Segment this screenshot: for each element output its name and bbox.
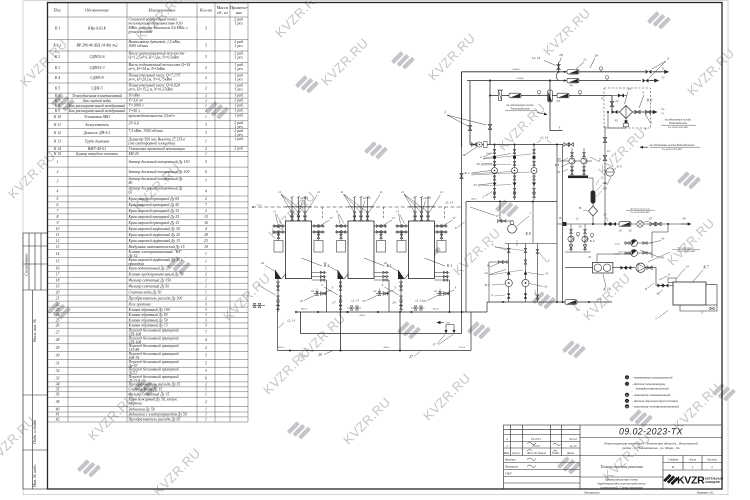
svg-text:159х4,5: 159х4,5 — [512, 68, 520, 71]
svg-text:ЗАВОД.РФ: ЗАВОД.РФ — [705, 480, 720, 484]
svg-text:42: 42 — [56, 418, 60, 422]
svg-text:2: 2 — [205, 209, 207, 213]
svg-text:в УУ: в УУ — [597, 298, 602, 301]
svg-text:21: 21 — [56, 296, 60, 300]
svg-text:17: 17 — [495, 214, 499, 218]
svg-text:108х4: 108х4 — [359, 314, 365, 317]
svg-text:1: 1 — [205, 278, 207, 282]
svg-text:3: 3 — [205, 313, 207, 317]
svg-text:СДМ-5: СДМ-5 — [91, 86, 102, 90]
svg-text:Преобразователь расхода Ду 1: Преобразователь расхода Ду 15 — [128, 383, 181, 387]
svg-text:11: 11 — [396, 210, 399, 214]
svg-text:6: 6 — [205, 170, 207, 174]
svg-text:28: 28 — [56, 338, 60, 342]
svg-text:Теплообменник пластинчатый: Теплообменник пластинчатый — [72, 93, 122, 98]
svg-text:Взам. инв. №: Взам. инв. № — [32, 319, 37, 342]
svg-text:Кран подпиточный Ду 25: Кран подпиточный Ду 25 — [128, 266, 170, 271]
svg-text:Затвор дисковый поворотный Ду: Затвор дисковый поворотный Ду — [129, 176, 184, 181]
svg-text:ручной топкой: ручной топкой — [128, 29, 153, 34]
svg-text:40: 40 — [56, 408, 60, 412]
svg-text:1 раб.: 1 раб. — [234, 99, 244, 103]
svg-text:25х3,5: 25х3,5 — [535, 290, 537, 295]
svg-text:СДМ5-8: СДМ5-8 — [90, 76, 103, 80]
svg-text:30: 30 — [56, 354, 60, 358]
svg-text:Затвор дисковый поворотный Ду: Затвор дисковый поворотный Ду 100 — [129, 169, 190, 174]
svg-text:20: 20 — [56, 290, 60, 294]
svg-text:22: 22 — [261, 261, 265, 265]
svg-text:32: 32 — [56, 369, 60, 373]
svg-text:3: 3 — [205, 319, 207, 323]
svg-text:Клапан обратный Ду 50: Клапан обратный Ду 50 — [128, 318, 168, 323]
svg-text:22: 22 — [373, 289, 377, 293]
svg-text:19: 19 — [56, 284, 60, 288]
svg-text:27: 27 — [332, 301, 336, 305]
svg-text:159х4,5: 159х4,5 — [516, 77, 524, 80]
svg-text:33: 33 — [56, 376, 60, 380]
svg-text:Водоснабжения: Водоснабжения — [669, 122, 688, 125]
svg-text:Лист № докум.: Лист № докум. — [526, 451, 547, 455]
svg-text:1: 1 — [205, 290, 207, 294]
svg-text:СДМ15-3: СДМ15-3 — [89, 66, 104, 70]
svg-text:К 3: К 3 — [54, 66, 60, 70]
svg-text:К 5: К 5 — [54, 86, 60, 90]
svg-text:1: 1 — [205, 252, 207, 256]
svg-text:2: 2 — [711, 465, 713, 469]
svg-text:П: П — [671, 465, 675, 469]
svg-text:К 8: К 8 — [524, 232, 530, 236]
svg-text:2: 2 — [205, 383, 207, 387]
svg-text:13: 13 — [204, 215, 208, 219]
svg-text:2: 2 — [205, 400, 207, 404]
svg-text:Лист: Лист — [688, 458, 697, 462]
svg-text:14: 14 — [56, 252, 60, 256]
svg-text:02.24: 02.24 — [569, 437, 577, 441]
svg-text:10: 10 — [56, 227, 60, 231]
svg-text:11: 11 — [440, 190, 443, 194]
svg-text:Кран шаровой муфтовый Ду 20: Кран шаровой муфтовый Ду 20 — [128, 232, 180, 237]
svg-text:Фильтр сетчатый Ду 150: Фильтр сетчатый Ду 150 — [129, 277, 172, 282]
svg-text:36: 36 — [579, 206, 583, 210]
svg-text:3: 3 — [205, 44, 207, 48]
svg-text:29: 29 — [318, 353, 322, 357]
svg-text:2: 2 — [205, 346, 207, 350]
svg-text:16: 16 — [56, 267, 60, 271]
svg-text:1: 1 — [205, 393, 207, 397]
svg-text:ГИП: ГИП — [504, 471, 512, 475]
svg-text:К 9: К 9 — [616, 165, 622, 169]
svg-text:89х3,5: 89х3,5 — [301, 309, 308, 311]
svg-text:К 7: К 7 — [54, 99, 61, 103]
svg-text:- манометр показывающий: - манометр показывающий — [632, 392, 671, 397]
svg-text:Согласовано: Согласовано — [24, 254, 29, 276]
svg-text:Кран шаровой приварной Ду 65: Кран шаровой приварной Ду 65 — [128, 196, 180, 201]
svg-text:1 раб.: 1 раб. — [234, 114, 244, 118]
svg-text:34: 34 — [569, 84, 573, 88]
svg-text:Затвор дисковый поворотный Ду: Затвор дисковый поворотный Ду 150 — [129, 159, 190, 164]
svg-text:Реле протока: Реле протока — [128, 302, 151, 306]
svg-text:28: 28 — [204, 233, 208, 237]
svg-text:41: 41 — [661, 237, 665, 241]
svg-text:1 раб.: 1 раб. — [234, 94, 244, 98]
svg-text:Фильтр сетчатый Ду 50: Фильтр сетчатый Ду 50 — [129, 283, 170, 288]
svg-text:(термосопротивления): (термосопротивления) — [636, 387, 669, 391]
svg-text:8: 8 — [57, 215, 59, 219]
svg-text:6: 6 — [57, 203, 59, 207]
svg-text:1 раб.: 1 раб. — [234, 109, 244, 113]
svg-text:1: 1 — [692, 465, 694, 469]
svg-text:К 7: К 7 — [702, 266, 709, 270]
svg-text:11.23: 11.23 — [570, 444, 577, 448]
svg-text:4: 4 — [205, 189, 207, 193]
svg-text:35: 35 — [602, 187, 606, 191]
svg-text:К 1.1: К 1.1 — [52, 44, 61, 48]
svg-text:30: 30 — [476, 162, 480, 166]
svg-text:57х3,5: 57х3,5 — [459, 347, 466, 349]
svg-text:1: 1 — [205, 104, 207, 108]
svg-text:Кран шаровой приварной Ду 50: Кран шаровой приварной Ду 50 — [128, 202, 180, 207]
svg-text:Преобразователь расхода Ду 6: Преобразователь расхода Ду 65 — [128, 418, 181, 422]
svg-text:1: 1 — [205, 413, 207, 417]
svg-text:Задвижка Ду 50: Задвижка Ду 50 — [129, 408, 155, 412]
svg-text:СДМ32-6: СДМ32-6 — [89, 55, 104, 59]
svg-text:Дата: Дата — [566, 451, 575, 455]
svg-text:4: 4 — [57, 189, 59, 193]
svg-text:5: 5 — [205, 362, 207, 366]
svg-text:К 1: К 1 — [54, 26, 60, 30]
svg-text:Подп. и дата: Подп. и дата — [32, 420, 37, 445]
svg-text:2: 2 — [205, 147, 207, 151]
svg-text:25: 25 — [603, 213, 607, 217]
svg-text:11: 11 — [317, 190, 320, 194]
svg-text:17: 17 — [329, 216, 333, 220]
svg-text:Установка приточной вентиляции: Установка приточной вентиляции — [129, 146, 185, 151]
svg-text:19: 19 — [648, 217, 652, 221]
svg-text:Кран шаровой муфтовый Ду 15: Кран шаровой муфтовый Ду 15 — [128, 238, 180, 243]
svg-text:23: 23 — [473, 183, 477, 187]
svg-text:4: 4 — [205, 338, 207, 342]
svg-text:1 рез.: 1 рез. — [235, 87, 244, 91]
svg-text:21: 21 — [583, 58, 587, 62]
svg-text:К 10: К 10 — [53, 115, 61, 119]
svg-text:- манометр электроконтактный: - манометр электроконтактный — [632, 404, 679, 409]
svg-text:Кол-во: Кол-во — [199, 8, 213, 13]
svg-text:6: 6 — [205, 376, 207, 380]
svg-text:24: 24 — [484, 271, 488, 275]
svg-text:33: 33 — [557, 157, 561, 161]
svg-text:22: 22 — [311, 289, 315, 293]
svg-text:Клапан предохранительный Ду 5: Клапан предохранительный Ду 50 — [128, 271, 184, 276]
svg-text:23: 23 — [56, 308, 60, 312]
svg-text:К 13: К 13 — [53, 140, 61, 144]
svg-text:12: 12 — [601, 176, 605, 180]
svg-text:1: 1 — [205, 284, 207, 288]
svg-text:11: 11 — [401, 190, 404, 194]
svg-text:45х2,5: 45х2,5 — [433, 308, 440, 311]
svg-text:Задвижка с электроприводом Ду: Задвижка с электроприводом Ду 50 — [129, 413, 187, 417]
svg-text:К 6: К 6 — [54, 94, 60, 98]
svg-text:17: 17 — [432, 343, 436, 347]
svg-text:3: 3 — [205, 324, 207, 328]
svg-text:3: 3 — [205, 369, 207, 373]
svg-text:31: 31 — [544, 285, 548, 289]
svg-text:К 1: К 1 — [446, 264, 452, 268]
svg-text:4: 4 — [205, 227, 207, 231]
svg-text:11: 11 — [273, 210, 276, 214]
svg-text:29: 29 — [392, 301, 396, 305]
svg-text:1 рез.: 1 рез. — [235, 77, 244, 81]
svg-text:1: 1 — [205, 94, 207, 98]
svg-text:10: 10 — [204, 245, 208, 249]
svg-text:3: 3 — [205, 308, 207, 312]
svg-text:28: 28 — [559, 53, 563, 57]
svg-text:14: 14 — [685, 265, 689, 269]
svg-text:Проект: Проект — [504, 458, 516, 462]
svg-text:1: 1 — [667, 57, 669, 61]
svg-text:К 12: К 12 — [53, 131, 61, 135]
svg-text:К 2: К 2 — [464, 171, 470, 175]
svg-text:18: 18 — [56, 278, 60, 282]
svg-text:33: 33 — [614, 119, 618, 123]
svg-text:2: 2 — [57, 170, 59, 174]
svg-text:Клапан обратный Ду 15: Клапан обратный Ду 15 — [128, 323, 168, 328]
svg-text:1: 1 — [205, 418, 207, 422]
svg-text:31: 31 — [557, 170, 561, 174]
svg-text:К 14: К 14 — [53, 147, 61, 151]
svg-text:3: 3 — [205, 26, 207, 30]
svg-text:2: 2 — [205, 272, 207, 276]
svg-text:10 кВт: 10 кВт — [129, 94, 141, 98]
svg-text:15: 15 — [56, 260, 60, 264]
svg-text:1 раб.: 1 раб. — [234, 104, 244, 108]
svg-text:Бункер твердого топлива: Бункер твердого топлива — [75, 152, 118, 156]
svg-text:26: 26 — [56, 324, 60, 328]
svg-text:22: 22 — [434, 289, 438, 293]
svg-text:KVZR: KVZR — [677, 474, 705, 486]
svg-text:32: 32 — [579, 225, 583, 229]
svg-text:11: 11 — [56, 233, 60, 237]
svg-text:2 раб.: 2 раб. — [234, 147, 244, 151]
svg-text:Клапан обратный Ду 65: Клапан обратный Ду 65 — [128, 312, 168, 317]
svg-text:на собственные нужды: на собственные нужды — [506, 104, 533, 107]
svg-text:2: 2 — [205, 296, 207, 300]
svg-text:15х2,5: 15х2,5 — [614, 254, 620, 256]
svg-text:1: 1 — [205, 260, 207, 264]
svg-text:См. 09.02-2023-ВК2: См. 09.02-2023-ВК2 — [662, 148, 683, 151]
svg-text:1 рез.: 1 рез. — [235, 21, 244, 25]
svg-text:27: 27 — [409, 355, 413, 359]
svg-text:34: 34 — [556, 99, 560, 103]
svg-text:на собственные нужды: на собственные нужды — [665, 119, 691, 122]
svg-text:5: 5 — [205, 160, 207, 164]
svg-text:Преобразователь расхода Ду: Преобразователь расхода Ду 100 — [128, 296, 183, 300]
svg-text:Бак расширительный мембранный: Бак расширительный мембранный — [68, 103, 125, 108]
svg-text:Кран шаровой приварной Ду 32: Кран шаровой приварной Ду 32 — [128, 208, 180, 213]
svg-text:- термометр показывающий: - термометр показывающий — [632, 375, 673, 380]
svg-text:1: 1 — [57, 160, 59, 164]
svg-text:22: 22 — [323, 261, 327, 265]
svg-text:в котельной. Схема тепловая: в котельной. Схема тепловая — [600, 484, 643, 489]
svg-text:65: 65 — [129, 191, 133, 195]
svg-text:22: 22 — [384, 261, 388, 265]
svg-text:25: 25 — [300, 299, 304, 303]
svg-text:16: 16 — [559, 216, 563, 220]
svg-text:5: 5 — [205, 354, 207, 358]
svg-text:К 15: К 15 — [53, 152, 61, 156]
svg-text:К 11: К 11 — [53, 123, 61, 127]
svg-text:09.02-2023-ТХ: 09.02-2023-ТХ — [619, 426, 684, 436]
svg-text:К 6: К 6 — [646, 99, 652, 103]
svg-text:57х3,5: 57х3,5 — [614, 244, 620, 246]
svg-text:22: 22 — [56, 302, 60, 306]
svg-text:1 рез.: 1 рез. — [235, 67, 244, 71]
svg-text:25: 25 — [56, 319, 60, 323]
svg-text:41: 41 — [56, 413, 60, 417]
svg-text:3: 3 — [205, 123, 207, 127]
svg-text:3000 об/мин: 3000 об/мин — [129, 44, 149, 48]
svg-text:Кран шаровой муфтовый Ду 50: Кран шаровой муфтовый Ду 50 — [128, 226, 180, 231]
svg-text:31: 31 — [56, 362, 60, 366]
svg-text:24: 24 — [56, 313, 60, 317]
svg-text:11: 11 — [336, 210, 339, 214]
svg-text:Бак расширительный мембранный: Бак расширительный мембранный — [68, 108, 125, 113]
svg-text:36: 36 — [56, 393, 60, 397]
svg-text:13: 13 — [56, 245, 60, 249]
svg-text:БН-20: БН-20 — [128, 152, 139, 156]
svg-text:17: 17 — [452, 216, 456, 220]
svg-text:Артезианский узел: Артезианский узел — [629, 208, 650, 211]
svg-text:35: 35 — [56, 388, 60, 392]
svg-text:V=1000 л: V=1000 л — [129, 104, 144, 108]
svg-text:Поз.: Поз. — [52, 8, 61, 13]
svg-text:1: 1 — [205, 388, 207, 392]
svg-text:1: 1 — [205, 408, 207, 412]
svg-text:К 5: К 5 — [554, 163, 560, 167]
svg-text:Кран шаровой приварной Ду 15: Кран шаровой приварной Ду 15 — [128, 220, 180, 225]
svg-text:К 4: К 4 — [589, 239, 595, 243]
svg-text:Технологические решения: Технологические решения — [600, 465, 642, 469]
svg-text:29: 29 — [56, 346, 60, 350]
svg-text:К 4: К 4 — [54, 76, 60, 80]
svg-text:12: 12 — [576, 217, 580, 221]
svg-text:К 9: К 9 — [54, 109, 60, 113]
svg-text:Теплоснабжения: Теплоснабжения — [510, 108, 530, 111]
svg-text:Бак чистой воды: Бак чистой воды — [82, 98, 111, 103]
svg-text:17: 17 — [454, 226, 458, 230]
svg-text:приводом: приводом — [129, 262, 145, 266]
svg-text:40: 40 — [682, 217, 686, 221]
svg-text:на собственные нужды Водоснаб: на собственные нужды Водоснабжения — [650, 144, 695, 147]
svg-text:Подп.: Подп. — [551, 451, 560, 455]
svg-text:89х3,5: 89х3,5 — [471, 198, 477, 200]
svg-text:1: 1 — [205, 115, 207, 119]
svg-text:См. 09.02-2023-ВК2: См. 09.02-2023-ВК2 — [668, 126, 689, 129]
svg-text:1: 1 — [205, 152, 207, 156]
svg-text:- датчик температуры: - датчик температуры — [632, 382, 666, 386]
svg-text:Стадия: Стадия — [668, 458, 679, 462]
svg-text:11: 11 — [278, 190, 281, 194]
svg-text:2: 2 — [205, 86, 207, 90]
svg-text:2: 2 — [205, 76, 207, 80]
svg-text:Контурный узел: Контурный узел — [677, 247, 694, 250]
svg-text:К 10: К 10 — [602, 288, 610, 292]
svg-text:1: 1 — [444, 111, 446, 115]
svg-text:23: 23 — [204, 239, 208, 243]
svg-text:5: 5 — [57, 197, 59, 201]
svg-text:34: 34 — [56, 383, 60, 387]
svg-text:28: 28 — [594, 54, 598, 58]
svg-text:38: 38 — [56, 400, 60, 404]
svg-text:12: 12 — [56, 239, 60, 243]
svg-text:25: 25 — [423, 299, 427, 303]
svg-text:2: 2 — [205, 197, 207, 201]
svg-text:Золоуловитель: Золоуловитель — [85, 123, 109, 127]
svg-text:2: 2 — [205, 66, 207, 70]
svg-text:См. 09.02-2023-ВК2: См. 09.02-2023-ВК2 — [677, 251, 696, 253]
svg-text:80: 80 — [129, 181, 133, 185]
svg-text:К 2: К 2 — [54, 55, 60, 59]
svg-text:Кран шаровой приварной Ду 25: Кран шаровой приварной Ду 25 — [128, 214, 180, 219]
svg-text:ВМУ-40-01: ВМУ-40-01 — [88, 147, 106, 151]
svg-text:1: 1 — [205, 267, 207, 271]
svg-text:(от светофорной площадки): (от светофорной площадки) — [129, 141, 176, 146]
svg-text:15: 15 — [627, 87, 631, 91]
svg-text:25-23: 25-23 — [532, 444, 540, 448]
svg-text:25х3,5: 25х3,5 — [517, 240, 519, 246]
svg-text:Обозначение: Обозначение — [85, 8, 109, 13]
svg-text:ВР 280-46 (ВЦ 14-46) №2: ВР 280-46 (ВЦ 14-46) №2 — [76, 44, 117, 48]
svg-text:1: 1 — [205, 109, 207, 113]
svg-text:18: 18 — [462, 153, 466, 157]
svg-text:Установка ХВО: Установка ХВО — [84, 115, 110, 119]
svg-text:22: 22 — [615, 99, 619, 103]
svg-text:Проверил: Проверил — [504, 465, 518, 469]
svg-text:1 раб.: 1 раб. — [234, 137, 244, 141]
svg-text:Клапан обратный Ду 100: Клапан обратный Ду 100 — [128, 307, 170, 312]
svg-text:Наименование: Наименование — [147, 8, 175, 13]
svg-text:31: 31 — [545, 272, 549, 276]
svg-text:1: 1 — [205, 99, 207, 103]
svg-text:Кол.уч.: Кол.уч. — [511, 452, 521, 455]
svg-text:1: 1 — [205, 140, 207, 144]
svg-text:V=50 л: V=50 л — [129, 109, 141, 113]
svg-text:муфтов.: муфтов. — [128, 402, 143, 406]
svg-text:- датчик давления (прессоста: - датчик давления (прессостат) — [632, 399, 678, 403]
svg-text:1 рез.: 1 рез. — [235, 55, 244, 59]
svg-text:Инв. № подл.: Инв. № подл. — [32, 464, 37, 488]
svg-text:1 рез.: 1 рез. — [235, 44, 244, 48]
svg-text:25: 25 — [362, 299, 366, 303]
svg-text:16: 16 — [204, 221, 208, 225]
svg-text:3: 3 — [205, 131, 207, 135]
svg-text:Листов: Листов — [706, 458, 718, 462]
svg-text:3: 3 — [57, 180, 59, 184]
svg-text:32: 32 — [656, 292, 660, 296]
svg-text:Копировал: Копировал — [583, 491, 600, 495]
svg-text:108х4: 108х4 — [383, 346, 389, 349]
svg-text:Фильтр сетчатый Ду 15: Фильтр сетчатый Ду 15 — [129, 392, 170, 397]
svg-text:26: 26 — [602, 181, 606, 185]
svg-text:25: 25 — [588, 255, 592, 259]
svg-text:Г тм: Г тм — [256, 205, 262, 207]
svg-text:3: 3 — [205, 55, 207, 59]
svg-text:ние: ние — [236, 10, 242, 15]
svg-text:Счетчик Воды Ду 15: Счетчик Воды Ду 15 — [129, 388, 163, 392]
svg-text:Изм.: Изм. — [503, 451, 510, 455]
svg-text:Формат А2: Формат А2 — [697, 491, 714, 495]
svg-text:17: 17 — [392, 216, 396, 220]
svg-text:3: 3 — [205, 302, 207, 306]
svg-text:12: 12 — [607, 149, 611, 153]
